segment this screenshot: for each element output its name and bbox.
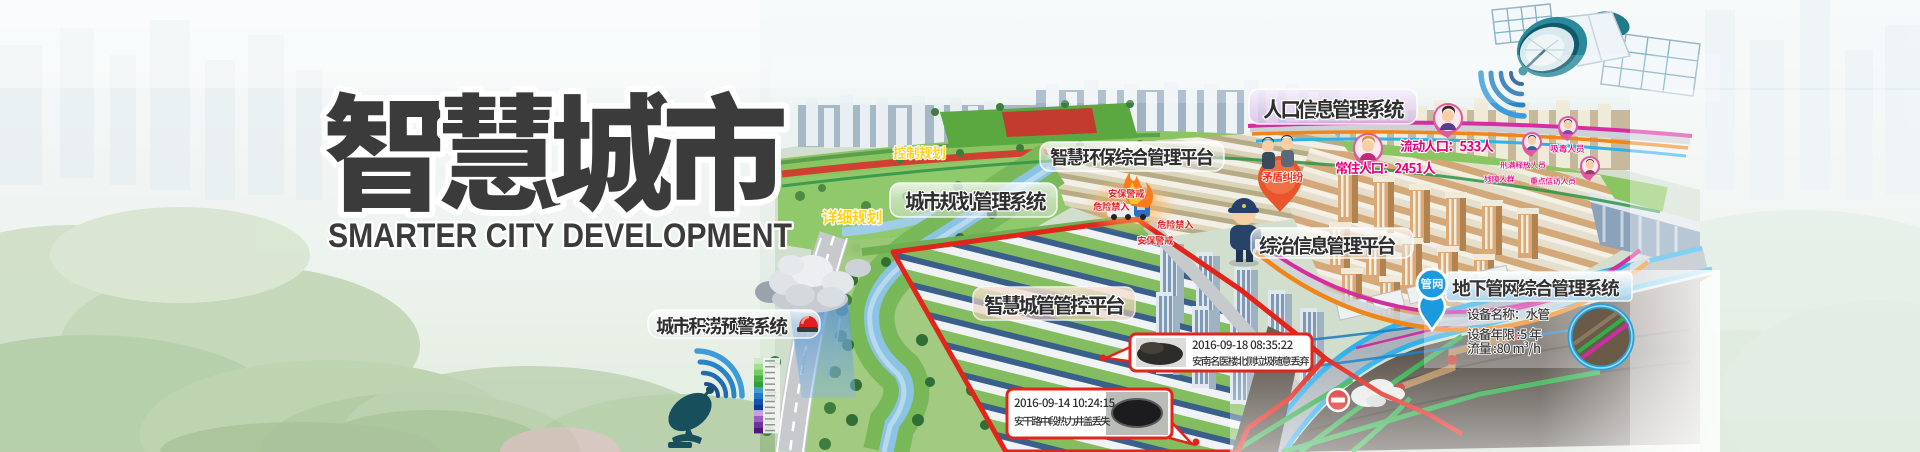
svg-text:SMARTER CITY DEVELOPMENT: SMARTER CITY DEVELOPMENT bbox=[328, 217, 792, 255]
